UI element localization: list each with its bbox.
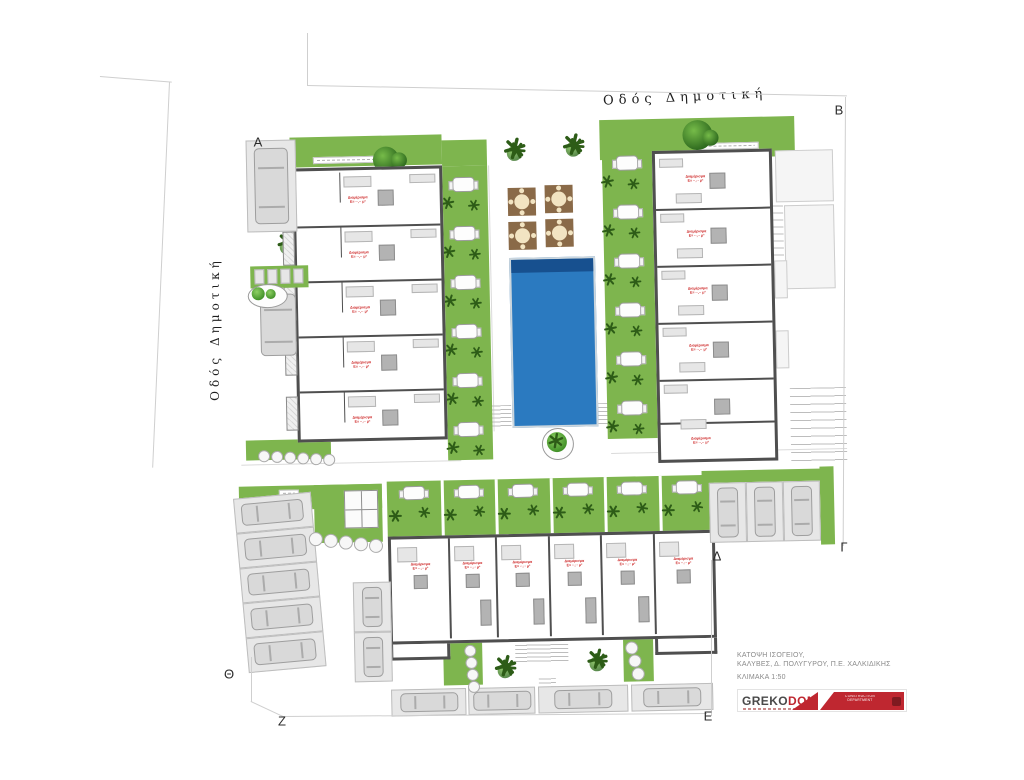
- apartment-area: Ε= ··,·· μ²: [686, 179, 706, 184]
- terrace: [775, 149, 834, 202]
- interior-wall: [600, 535, 604, 635]
- apartment-area: Ε= ··,·· μ²: [349, 255, 369, 260]
- logo-banner-text: CONSTRUCTION DEPARTMENT: [842, 695, 877, 703]
- vertex-letter-Β: Β: [835, 103, 844, 118]
- apartment-label: ΔιαμέρισμαΕ= ··,·· μ²: [350, 306, 370, 315]
- dining-table: [568, 572, 582, 586]
- kitchen-counter: [413, 339, 439, 349]
- apartment-area: Ε= ··,·· μ²: [350, 310, 370, 315]
- title-block: ΚΑΤΟΨΗ ΙΣΟΓΕΙΟΥ, ΚΑΛΥΒΕΣ, Δ. ΠΟΛΥΓΥΡΟΥ, …: [737, 651, 891, 682]
- apartment-area: Ε= ··,·· μ²: [673, 561, 693, 566]
- outdoor-table: [457, 485, 479, 499]
- car-top-view: [754, 487, 776, 537]
- stairs-hatch: [515, 640, 568, 663]
- dining-table: [515, 573, 529, 587]
- lawn: [819, 466, 835, 544]
- site-boundary-line: [307, 33, 308, 86]
- dining-table: [413, 575, 427, 589]
- sofa: [346, 286, 374, 298]
- interior-wall: [340, 228, 342, 258]
- apartment-label: ΔιαμέρισμαΕ= ··,·· μ²: [410, 563, 430, 572]
- planter-slot: [293, 268, 303, 283]
- sofa: [347, 341, 375, 353]
- dining-table: [710, 227, 726, 243]
- car-top-view: [362, 587, 383, 627]
- interior-wall: [297, 278, 441, 283]
- hedge-scallop: [369, 539, 383, 553]
- sofa: [676, 193, 702, 204]
- site-plan-canvas: ΔιαμέρισμαΕ= ··,·· μ²ΔιαμέρισμαΕ= ··,·· …: [0, 0, 1024, 768]
- apartment-area: Ε= ··,·· μ²: [691, 441, 711, 446]
- dining-table: [713, 341, 729, 357]
- site-boundary-line: [711, 560, 712, 716]
- planter-slot: [267, 269, 277, 284]
- outdoor-table: [621, 400, 643, 415]
- apartment-area: Ε= ··,·· μ²: [565, 564, 585, 569]
- hedge-scallop: [271, 451, 283, 463]
- outdoor-table: [675, 480, 697, 494]
- apartment-area: Ε= ··,·· μ²: [410, 567, 430, 572]
- building-bottom: ΔιαμέρισμαΕ= ··,·· μ²ΔιαμέρισμαΕ= ··,·· …: [388, 530, 717, 645]
- dining-table: [714, 398, 730, 414]
- bed: [554, 544, 574, 559]
- apartment-area: Ε= ··,·· μ²: [348, 200, 368, 205]
- bed: [659, 542, 679, 557]
- outdoor-table: [403, 486, 425, 500]
- outdoor-table: [619, 302, 641, 317]
- vertex-letter-Θ: Θ: [224, 667, 234, 682]
- stairs-hatch: [790, 387, 848, 466]
- apartment-label: ΔιαμέρισμαΕ= ··,·· μ²: [348, 196, 368, 205]
- car-top-view: [363, 637, 384, 677]
- sofa: [678, 305, 704, 316]
- vertex-letter-Α: Α: [254, 135, 263, 150]
- parasol-deck: [545, 219, 574, 248]
- apartment-area: Ε= ··,·· μ²: [351, 365, 371, 370]
- apartment-label: ΔιαμέρισμαΕ= ··,·· μ²: [673, 557, 693, 566]
- apartment-label: ΔιαμέρισμαΕ= ··,·· μ²: [688, 287, 708, 296]
- logo-red-banner: CONSTRUCTION DEPARTMENT: [820, 692, 904, 710]
- bed: [454, 546, 474, 561]
- outdoor-table: [566, 482, 588, 496]
- kitchen-counter: [659, 158, 683, 168]
- outdoor-table: [455, 324, 477, 339]
- building-left: ΔιαμέρισμαΕ= ··,·· μ²ΔιαμέρισμαΕ= ··,·· …: [292, 165, 448, 442]
- interior-wall: [300, 388, 444, 393]
- logo-tagline-bar: [743, 708, 801, 710]
- title-line-2: ΚΑΛΥΒΕΣ, Δ. ΠΟΛΥΓΥΡΟΥ, Π.Ε. ΧΑΛΚΙΔΙΚΗΣ: [737, 660, 891, 669]
- car-top-view: [717, 487, 739, 537]
- outdoor-table: [620, 351, 642, 366]
- bath-bump-out: [282, 232, 295, 266]
- bathroom-block: [480, 599, 492, 625]
- building-right: ΔιαμέρισμαΕ= ··,·· μ²ΔιαμέρισμαΕ= ··,·· …: [652, 149, 779, 463]
- kitchen-counter: [661, 270, 685, 280]
- bathroom-block: [533, 598, 545, 624]
- vertex-letter-Ε: Ε: [704, 709, 713, 724]
- interior-wall: [495, 537, 499, 637]
- interior-wall: [656, 207, 770, 211]
- sofa: [344, 231, 372, 243]
- hedge-scallop: [354, 537, 368, 551]
- hedge-scallop: [324, 534, 338, 548]
- interior-wall: [299, 333, 443, 338]
- apartment-area: Ε= ··,·· μ²: [617, 562, 637, 567]
- apartment-label: ΔιαμέρισμαΕ= ··,·· μ²: [689, 344, 709, 353]
- garden-strip: [442, 165, 493, 460]
- interior-wall: [548, 536, 552, 636]
- interior-wall: [343, 338, 345, 368]
- parasol-deck: [544, 185, 573, 214]
- apartment-area: Ε= ··,·· μ²: [353, 420, 373, 425]
- apartment-area: Ε= ··,·· μ²: [688, 291, 708, 296]
- interior-wall: [341, 283, 343, 313]
- sofa: [680, 419, 706, 430]
- sofa: [679, 362, 705, 373]
- apartment-label: ΔιαμέρισμαΕ= ··,·· μ²: [351, 361, 371, 370]
- hedge-scallop: [339, 535, 353, 549]
- dining-table: [709, 172, 725, 188]
- sofa: [677, 248, 703, 259]
- bathroom-block: [638, 596, 650, 622]
- apartment-label: ΔιαμέρισμαΕ= ··,·· μ²: [564, 559, 584, 568]
- vertex-letter-Δ: Δ: [713, 549, 722, 564]
- pergola: [344, 490, 379, 529]
- apartment-area: Ε= ··,·· μ²: [462, 566, 482, 571]
- street-label-left: Οδός Δημοτική: [208, 254, 222, 404]
- kitchen-counter: [664, 384, 688, 394]
- grekodom-logo: GREKODOM CONSTRUCTION DEPARTMENT: [737, 689, 907, 712]
- car-top-view: [643, 687, 701, 707]
- building-wing: [390, 643, 450, 660]
- dining-table: [381, 354, 397, 370]
- dining-table: [465, 574, 479, 588]
- interior-wall: [658, 321, 772, 325]
- apartment-label: ΔιαμέρισμαΕ= ··,·· μ²: [685, 175, 705, 184]
- hedge-scallop: [323, 454, 335, 466]
- bath-bump-out: [286, 396, 299, 430]
- hedge-scallop: [258, 450, 270, 462]
- diagonal-parking-group: [233, 492, 327, 673]
- dining-table: [378, 189, 394, 205]
- apartment-area: Ε= ··,·· μ²: [512, 565, 532, 570]
- title-scale: ΚΛΙΜΑΚΑ 1:50: [737, 673, 891, 682]
- parasol-deck: [508, 221, 537, 250]
- interior-wall: [344, 393, 346, 423]
- planter-slot: [280, 269, 290, 284]
- apartment-label: ΔιαμέρισμαΕ= ··,·· μ²: [512, 560, 532, 569]
- apartment-label: ΔιαμέρισμαΕ= ··,·· μ²: [691, 437, 711, 446]
- interior-wall: [339, 173, 341, 203]
- apartment-label: ΔιαμέρισμαΕ= ··,·· μ²: [349, 251, 369, 260]
- interior-wall: [296, 223, 440, 228]
- terrace: [784, 204, 836, 289]
- parasol-deck: [508, 187, 537, 216]
- car-top-view: [254, 148, 290, 225]
- kitchen-counter: [410, 229, 436, 239]
- kitchen-counter: [660, 213, 684, 223]
- car-top-view: [791, 486, 813, 536]
- dining-table: [382, 409, 398, 425]
- dining-table: [620, 570, 634, 584]
- outdoor-table: [456, 373, 478, 388]
- apartment-label: ΔιαμέρισμαΕ= ··,·· μ²: [617, 558, 637, 567]
- kitchen-counter: [414, 394, 440, 404]
- outdoor-table: [616, 155, 638, 170]
- car-top-view: [400, 692, 458, 712]
- hedge-scallop: [309, 532, 323, 546]
- dining-table: [712, 284, 728, 300]
- sofa: [348, 396, 376, 408]
- swimming-pool: [509, 256, 599, 428]
- apartment-area: Ε= ··,·· μ²: [689, 348, 709, 353]
- car-top-view: [473, 691, 531, 711]
- lawn: [442, 139, 488, 166]
- apartment-label: ΔιαμέρισμαΕ= ··,·· μ²: [352, 416, 372, 425]
- vertex-letter-Γ: Γ: [840, 540, 847, 555]
- vertex-letter-Ζ: Ζ: [278, 714, 286, 729]
- interior-wall: [657, 264, 771, 268]
- interior-wall: [661, 421, 775, 425]
- planter-slot: [254, 269, 264, 284]
- bed: [501, 545, 521, 560]
- kitchen-counter: [663, 327, 687, 337]
- outdoor-table: [512, 484, 534, 498]
- bathroom-block: [585, 597, 597, 623]
- building-wing: [655, 638, 717, 655]
- outdoor-table: [617, 204, 639, 219]
- dining-table: [380, 299, 396, 315]
- interior-wall: [653, 534, 657, 634]
- logo-emblem-icon: [892, 697, 901, 706]
- terrace: [776, 330, 790, 368]
- dining-table: [379, 244, 395, 260]
- outdoor-table: [618, 253, 640, 268]
- title-line-1: ΚΑΤΟΨΗ ΙΣΟΓΕΙΟΥ,: [737, 651, 891, 660]
- outdoor-table: [453, 226, 475, 241]
- site-boundary-line: [251, 657, 252, 702]
- interior-wall: [660, 378, 774, 382]
- hedge-scallop: [284, 452, 296, 464]
- car-top-view: [554, 689, 612, 709]
- kitchen-counter: [412, 284, 438, 294]
- outdoor-table: [457, 422, 479, 437]
- kitchen-counter: [409, 174, 435, 184]
- bed: [606, 543, 626, 558]
- bed: [397, 547, 417, 562]
- apartment-label: ΔιαμέρισμαΕ= ··,·· μ²: [687, 230, 707, 239]
- outdoor-table: [452, 177, 474, 192]
- terrace: [774, 260, 788, 298]
- dining-table: [676, 569, 690, 583]
- outdoor-table: [621, 481, 643, 495]
- apartment-label: ΔιαμέρισμαΕ= ··,·· μ²: [462, 562, 482, 571]
- apartment-area: Ε= ··,·· μ²: [687, 234, 707, 239]
- sofa: [343, 176, 371, 188]
- interior-wall: [448, 538, 452, 638]
- outdoor-table: [454, 275, 476, 290]
